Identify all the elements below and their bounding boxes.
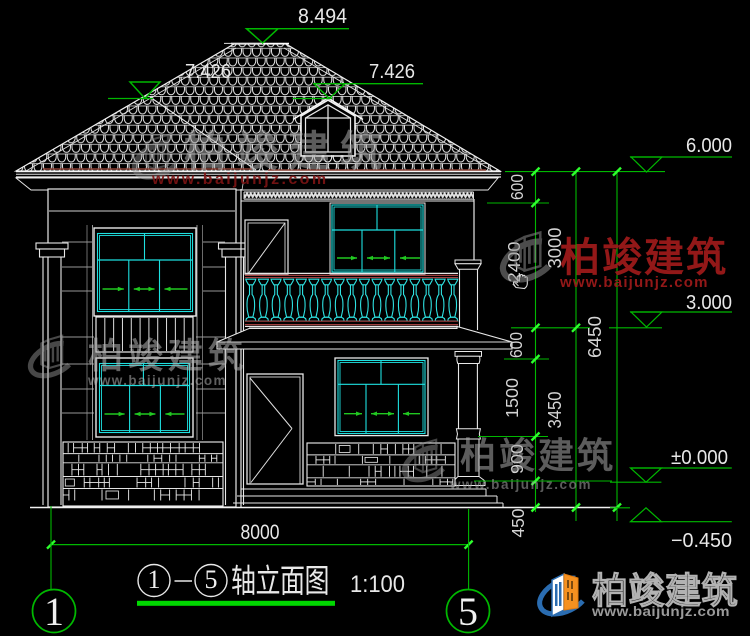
svg-text:450: 450	[508, 508, 528, 537]
svg-text:www.baijunjz.com: www.baijunjz.com	[151, 171, 329, 188]
svg-text:7.426: 7.426	[369, 61, 415, 83]
svg-text:6.000: 6.000	[686, 135, 732, 157]
svg-text:1: 1	[44, 589, 64, 634]
svg-text:轴立面图: 轴立面图	[231, 563, 329, 600]
svg-text:8.494: 8.494	[298, 5, 347, 28]
svg-text:www.baijunjz.com: www.baijunjz.com	[591, 603, 730, 619]
svg-text:竣: 竣	[236, 128, 278, 175]
svg-text:5: 5	[205, 565, 218, 594]
svg-text:3450: 3450	[544, 392, 565, 429]
svg-text:5: 5	[458, 589, 478, 634]
svg-text:8000: 8000	[241, 521, 280, 544]
svg-text:柏: 柏	[184, 128, 226, 175]
svg-text:3.000: 3.000	[686, 292, 732, 314]
svg-text:建: 建	[288, 128, 330, 175]
svg-text:柏: 柏	[88, 337, 123, 376]
svg-text:建: 建	[168, 337, 203, 376]
svg-text:竣: 竣	[499, 435, 535, 476]
svg-text:竣: 竣	[128, 336, 163, 376]
svg-text:筑: 筑	[340, 128, 382, 175]
svg-text:柏: 柏	[460, 435, 496, 476]
svg-text:1500: 1500	[502, 378, 522, 418]
svg-text:1:100: 1:100	[350, 571, 405, 598]
svg-text:6450: 6450	[584, 316, 605, 358]
svg-text:7.426: 7.426	[185, 61, 231, 83]
svg-text:600: 600	[507, 174, 527, 200]
svg-text:1: 1	[148, 565, 161, 594]
svg-text:±0.000: ±0.000	[671, 447, 728, 469]
svg-text:筑: 筑	[577, 435, 613, 476]
svg-text:600: 600	[506, 332, 526, 358]
svg-text:−0.450: −0.450	[671, 530, 732, 552]
svg-text:www.baijunjz.com: www.baijunjz.com	[449, 477, 592, 492]
svg-text:建: 建	[538, 435, 574, 476]
svg-text:筑: 筑	[208, 337, 243, 376]
svg-text:www.baijunjz.com: www.baijunjz.com	[559, 274, 709, 291]
svg-text:www.baijunjz.com: www.baijunjz.com	[87, 373, 227, 388]
